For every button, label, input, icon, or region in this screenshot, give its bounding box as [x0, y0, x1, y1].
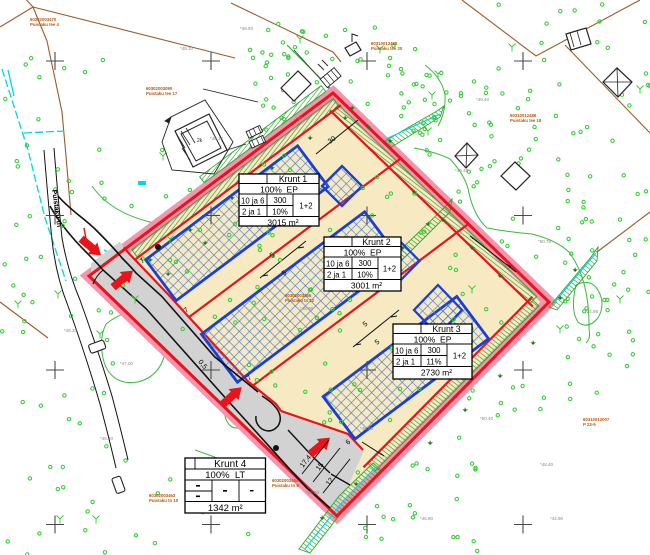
svg-text:P 23-9: P 23-9 [583, 422, 596, 427]
svg-text:300: 300 [427, 346, 441, 355]
svg-text:Puistaku tee 20: Puistaku tee 20 [371, 46, 403, 51]
svg-text:10 ja 6: 10 ja 6 [241, 197, 264, 206]
svg-text:2k: 2k [197, 138, 203, 144]
svg-text:*46.80: *46.80 [420, 516, 434, 521]
svg-text:Puistaku tn 8: Puistaku tn 8 [272, 483, 299, 488]
svg-text:11%: 11% [426, 357, 441, 366]
svg-text:*49.93: *49.93 [240, 26, 254, 31]
svg-text:1+2: 1+2 [453, 351, 466, 360]
svg-text:*48.20: *48.20 [64, 328, 78, 333]
svg-text:Puistaku tn 12: Puistaku tn 12 [285, 298, 315, 303]
svg-text:2730 m²: 2730 m² [421, 367, 452, 377]
svg-text:Krunt 1: Krunt 1 [279, 174, 307, 184]
svg-text:2 ja 1: 2 ja 1 [396, 357, 415, 366]
svg-text:Puistaku tee 18: Puistaku tee 18 [510, 118, 542, 123]
svg-text:3001 m²: 3001 m² [351, 280, 382, 290]
svg-text:10 ja 6: 10 ja 6 [326, 260, 349, 269]
svg-text:2 ja 1: 2 ja 1 [327, 270, 346, 279]
svg-text:10 ja 6: 10 ja 6 [395, 347, 418, 356]
svg-text:*48.86: *48.86 [300, 306, 314, 311]
svg-text:*49.10: *49.10 [180, 46, 194, 51]
svg-text:*45.50: *45.50 [306, 490, 320, 495]
svg-text:2 ja 1: 2 ja 1 [242, 207, 261, 216]
svg-text:1+2: 1+2 [383, 264, 396, 273]
svg-text:10%: 10% [357, 270, 373, 279]
svg-text:*49.48: *49.48 [455, 168, 469, 173]
svg-text:*24.98: *24.98 [585, 309, 599, 314]
svg-text:Puistaku tn 10: Puistaku tn 10 [149, 498, 179, 503]
svg-text:*50.40: *50.40 [480, 416, 494, 421]
svg-text:100% LT: 100% LT [205, 470, 245, 481]
svg-text:1+2: 1+2 [299, 201, 312, 210]
svg-text:Krunt 4: Krunt 4 [214, 459, 247, 470]
svg-text:Krunt 2: Krunt 2 [362, 237, 390, 247]
svg-text:*44.90: *44.90 [550, 516, 564, 521]
svg-text:Puistaku tee 17: Puistaku tee 17 [146, 91, 178, 96]
svg-text:100% EP: 100% EP [344, 247, 382, 257]
svg-text:300: 300 [358, 259, 372, 268]
svg-text:*47.00: *47.00 [120, 361, 134, 366]
svg-text:Puistaku tee 4: Puistaku tee 4 [30, 22, 60, 27]
svg-text:*45.40: *45.40 [100, 436, 114, 441]
svg-text:10%: 10% [272, 207, 288, 216]
svg-text:300: 300 [273, 196, 287, 205]
svg-text:*50.76: *50.76 [538, 239, 552, 244]
svg-text:*48.40: *48.40 [540, 462, 554, 467]
svg-text:*49.65: *49.65 [296, 116, 310, 121]
svg-text:Krunt 3: Krunt 3 [432, 324, 460, 334]
svg-text:1342 m²: 1342 m² [208, 503, 243, 514]
svg-text:*49.40: *49.40 [476, 97, 490, 102]
svg-text:100% EP: 100% EP [260, 184, 298, 194]
svg-text:*48.10: *48.10 [210, 136, 224, 141]
svg-text:3015 m²: 3015 m² [267, 217, 298, 227]
svg-text:100% EP: 100% EP [414, 334, 452, 344]
svg-text:*48.80: *48.80 [360, 426, 374, 431]
